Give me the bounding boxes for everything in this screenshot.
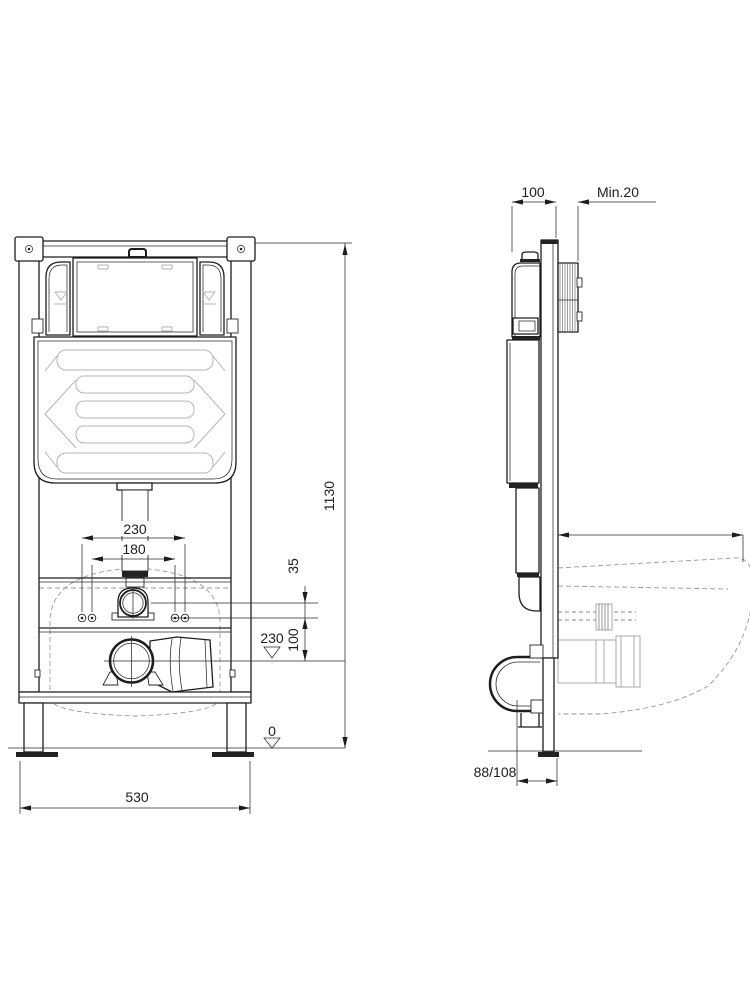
left-foot-plate (16, 752, 58, 757)
dim-frame-height: 1130 (255, 243, 352, 748)
left-leg (24, 703, 43, 752)
dim-frame-width-label: 530 (125, 789, 149, 805)
dim-flush-offset: 35 100 (285, 558, 308, 661)
wc-frame-drawing: 230 180 35 100 230 (0, 0, 750, 1000)
cistern-side (507, 252, 540, 611)
dim-frame-width: 530 (20, 761, 250, 814)
fill-valve-cap (522, 252, 538, 260)
bowl-outline-side (558, 558, 750, 714)
dim-rod-outer-label: 230 (123, 521, 147, 537)
level-marker-icon (264, 647, 280, 658)
top-tab (129, 249, 146, 257)
panel-latch-left (32, 319, 43, 333)
dim-bowl-reference (558, 532, 743, 562)
front-view (8, 237, 345, 757)
fixing-rod-side (558, 604, 636, 630)
foot-plate-side (538, 752, 559, 757)
floor-level-label: 0 (268, 723, 276, 739)
side-view (488, 240, 750, 757)
right-foot-plate (212, 752, 254, 757)
rod-end-ribbed (596, 604, 612, 630)
flush-bend-side (519, 577, 540, 611)
dim-wall-clearance: Min.20 (578, 184, 656, 261)
dim-flush-offset-label: 35 (285, 558, 301, 574)
drain-elbow-front (103, 636, 213, 692)
level-marker-drain: 230 (260, 630, 284, 658)
flush-pipe-flange (117, 483, 152, 490)
dim-drain-offset-label: 100 (285, 628, 301, 652)
frame-base (16, 692, 254, 757)
technical-drawing-page: 230 180 35 100 230 (0, 0, 750, 1000)
flush-pipe-side (516, 488, 539, 573)
access-window (32, 258, 238, 336)
drain-elbow-side (490, 645, 549, 727)
cistern-front (34, 337, 236, 483)
inspection-opening (73, 258, 197, 336)
dim-frame-depth-label: 100 (521, 184, 545, 200)
level-marker-icon (264, 738, 280, 748)
dim-wall-clearance-label: Min.20 (597, 184, 639, 200)
drain-level-label: 230 (260, 630, 284, 646)
panel-latch-right (227, 319, 238, 333)
right-leg (227, 703, 246, 752)
dim-frame-height-label: 1130 (321, 481, 337, 511)
flush-connector-side (558, 636, 640, 687)
dim-drain-setback-label: 88/108 (474, 764, 517, 780)
dim-rod-inner-label: 180 (122, 541, 146, 557)
level-marker-floor: 0 (264, 723, 280, 748)
wall-fixing-plate (558, 263, 582, 332)
frame-upright-side (541, 240, 558, 658)
